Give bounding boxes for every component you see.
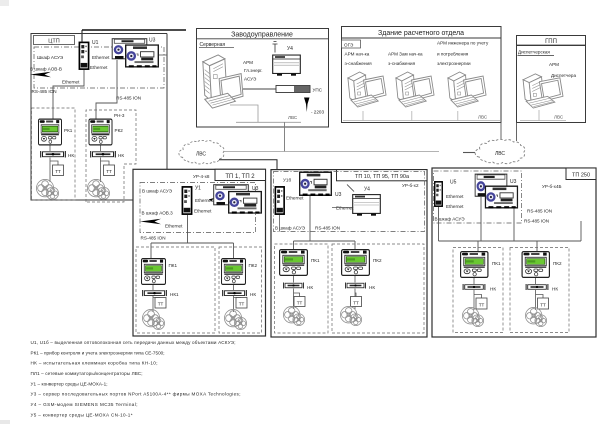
svg-text:U3: U3 <box>510 179 517 185</box>
svg-text:НК: НК <box>552 287 558 292</box>
svg-text:РК1: РК1 <box>64 128 73 133</box>
svg-text:У5 – конвертер среды ЦЕ-МОХА C: У5 – конвертер среды ЦЕ-МОХА CN-10-1* <box>31 412 133 417</box>
svg-text:э-снабжения: э-снабжения <box>388 61 416 66</box>
svg-text:ЛВС: ЛВС <box>554 115 564 120</box>
svg-text:Ethernet: Ethernet <box>446 194 464 199</box>
svg-text:НК: НК <box>250 292 256 297</box>
svg-text:НК: НК <box>307 285 313 290</box>
svg-text:ТТ: ТТ <box>158 302 164 307</box>
svg-text:РН-3: РН-3 <box>114 113 125 118</box>
svg-text:Ethernet: Ethernet <box>446 204 464 209</box>
svg-text:У4 – GSM-модем SIEMENS MC35 Te: У4 – GSM-модем SIEMENS MC35 Terminal; <box>31 402 138 407</box>
svg-text:УР-б-х2: УР-б-х2 <box>402 183 419 188</box>
svg-text:U1: U1 <box>92 40 99 46</box>
svg-text:ПК2: ПК2 <box>373 258 382 263</box>
svg-text:Ethernet: Ethernet <box>62 80 80 85</box>
svg-text:ЛВС: ЛВС <box>495 151 505 157</box>
svg-text:U1, U1б – выделенная оптоволок: U1, U1б – выделенная оптоволоконная сеть… <box>31 340 236 345</box>
svg-text:ТТ: ТТ <box>239 302 245 307</box>
svg-text:Ethernet: Ethernet <box>286 196 304 201</box>
svg-text:РК2: РК2 <box>115 128 124 133</box>
svg-text:В шкаф АОВ-В: В шкаф АОВ-В <box>30 67 62 72</box>
svg-text:U3: U3 <box>149 38 156 44</box>
svg-text:Заводоуправление: Заводоуправление <box>231 32 293 39</box>
svg-text:НК: НК <box>369 285 375 290</box>
svg-text:э-снабжения: э-снабжения <box>345 61 373 66</box>
svg-text:ТТ: ТТ <box>297 301 303 306</box>
svg-text:У3 – сервер последовательных п: У3 – сервер последовательных портов NPor… <box>31 392 241 397</box>
svg-text:В шкаф АОВ.3: В шкаф АОВ.3 <box>142 211 174 216</box>
svg-text:U3: U3 <box>335 192 342 198</box>
svg-text:ПЛ1 – сетевые коммутаторы/конц: ПЛ1 – сетевые коммутаторы/концентраторы … <box>31 371 143 376</box>
svg-text:У1 – конвертер среды ЦЕ-МОХА-1: У1 – конвертер среды ЦЕ-МОХА-1; <box>31 381 108 386</box>
svg-text:ТП 250: ТП 250 <box>572 173 590 179</box>
svg-text:АСУЭ: АСУЭ <box>244 77 257 82</box>
svg-text:ТТ: ТТ <box>540 303 546 308</box>
svg-text:НК1: НК1 <box>170 292 179 297</box>
svg-text:ТТ: ТТ <box>106 169 112 174</box>
svg-text:НК – испытательная клеммная ко: НК – испытательная клеммная коробка типа… <box>31 361 158 366</box>
svg-text:Ethernet: Ethernet <box>194 209 212 214</box>
svg-text:RS-485 ION: RS-485 ION <box>527 209 552 214</box>
svg-text:РК1 – прибор контроля и учета: РК1 – прибор контроля и учета электроэне… <box>31 350 165 355</box>
svg-text:Шкаф АСУЭ: Шкаф АСУЭ <box>37 55 64 60</box>
svg-text:Гл.энерг.: Гл.энерг. <box>244 68 263 73</box>
svg-text:U5: U5 <box>450 180 457 186</box>
svg-text:ТТ: ТТ <box>353 301 359 306</box>
svg-text:электроэнергии: электроэнергии <box>437 61 471 66</box>
svg-text:ЛВС: ЛВС <box>478 115 488 120</box>
svg-text:ЦТП: ЦТП <box>48 39 59 45</box>
svg-text:Серверная: Серверная <box>200 42 226 48</box>
svg-text:RS-485 ION: RS-485 ION <box>141 236 166 241</box>
svg-text:и потребления: и потребления <box>437 52 469 57</box>
svg-text:АРМ: АРМ <box>549 62 559 67</box>
svg-text:ТП 10, ТП 95, ТП 90а: ТП 10, ТП 95, ТП 90а <box>355 174 410 180</box>
svg-text:Диспетчера: Диспетчера <box>551 73 576 78</box>
svg-text:ЛВС: ЛВС <box>288 115 298 120</box>
svg-text:У1б: У1б <box>283 178 291 183</box>
svg-text:У1: У1 <box>195 186 201 192</box>
svg-text:УПС: УПС <box>313 88 323 93</box>
svg-text:НК: НК <box>118 153 124 158</box>
svg-text:ТТ: ТТ <box>55 169 61 174</box>
svg-text:Ethernet: Ethernet <box>92 55 110 60</box>
svg-text:Ethernet: Ethernet <box>90 65 108 70</box>
svg-text:АРМ Зам нач-ка: АРМ Зам нач-ка <box>388 52 423 57</box>
svg-text:- 2203: - 2203 <box>311 110 324 115</box>
svg-text:АРМ инженера по учету: АРМ инженера по учету <box>437 41 489 46</box>
svg-text:АРМ нач-ка: АРМ нач-ка <box>345 52 370 57</box>
svg-text:ОГЭ: ОГЭ <box>344 43 354 48</box>
svg-text:ПК1: ПК1 <box>492 261 501 266</box>
svg-text:ПК1: ПК1 <box>169 263 178 268</box>
svg-text:RS-485 ION: RS-485 ION <box>116 96 141 101</box>
svg-text:RS-485 ION: RS-485 ION <box>524 219 549 224</box>
svg-text:НК: НК <box>490 287 496 292</box>
svg-text:ТТ: ТТ <box>479 303 485 308</box>
svg-text:RS-485 ION: RS-485 ION <box>315 226 340 231</box>
svg-text:Диспетчерская: Диспетчерская <box>518 50 550 55</box>
svg-text:АРМ: АРМ <box>243 60 253 65</box>
svg-text:Ethernet: Ethernet <box>165 224 183 229</box>
svg-text:В шкаф АСУЭ: В шкаф АСУЭ <box>142 189 173 194</box>
svg-text:В шкаф АСУЭ: В шкаф АСУЭ <box>435 217 466 222</box>
svg-text:ГПП: ГПП <box>545 39 557 45</box>
svg-text:Ethernet: Ethernet <box>195 198 213 203</box>
svg-text:УР-4-х8: УР-4-х8 <box>193 174 210 179</box>
svg-text:Ethernet: Ethernet <box>336 206 354 211</box>
svg-text:U3: U3 <box>252 186 259 192</box>
svg-text:ТП 1, ТП 2: ТП 1, ТП 2 <box>225 174 255 180</box>
svg-text:Здание расчетного отдела: Здание расчетного отдела <box>378 30 464 37</box>
svg-text:ПК2: ПК2 <box>553 261 562 266</box>
svg-text:ПК1: ПК1 <box>311 258 320 263</box>
svg-text:ЛВС: ЛВС <box>196 152 206 158</box>
svg-text:УР-б-х4Б: УР-б-х4Б <box>542 184 562 189</box>
svg-text:У4: У4 <box>287 46 293 52</box>
svg-text:У4: У4 <box>364 187 370 193</box>
svg-text:ПК2: ПК2 <box>249 263 258 268</box>
svg-text:НК: НК <box>68 153 74 158</box>
